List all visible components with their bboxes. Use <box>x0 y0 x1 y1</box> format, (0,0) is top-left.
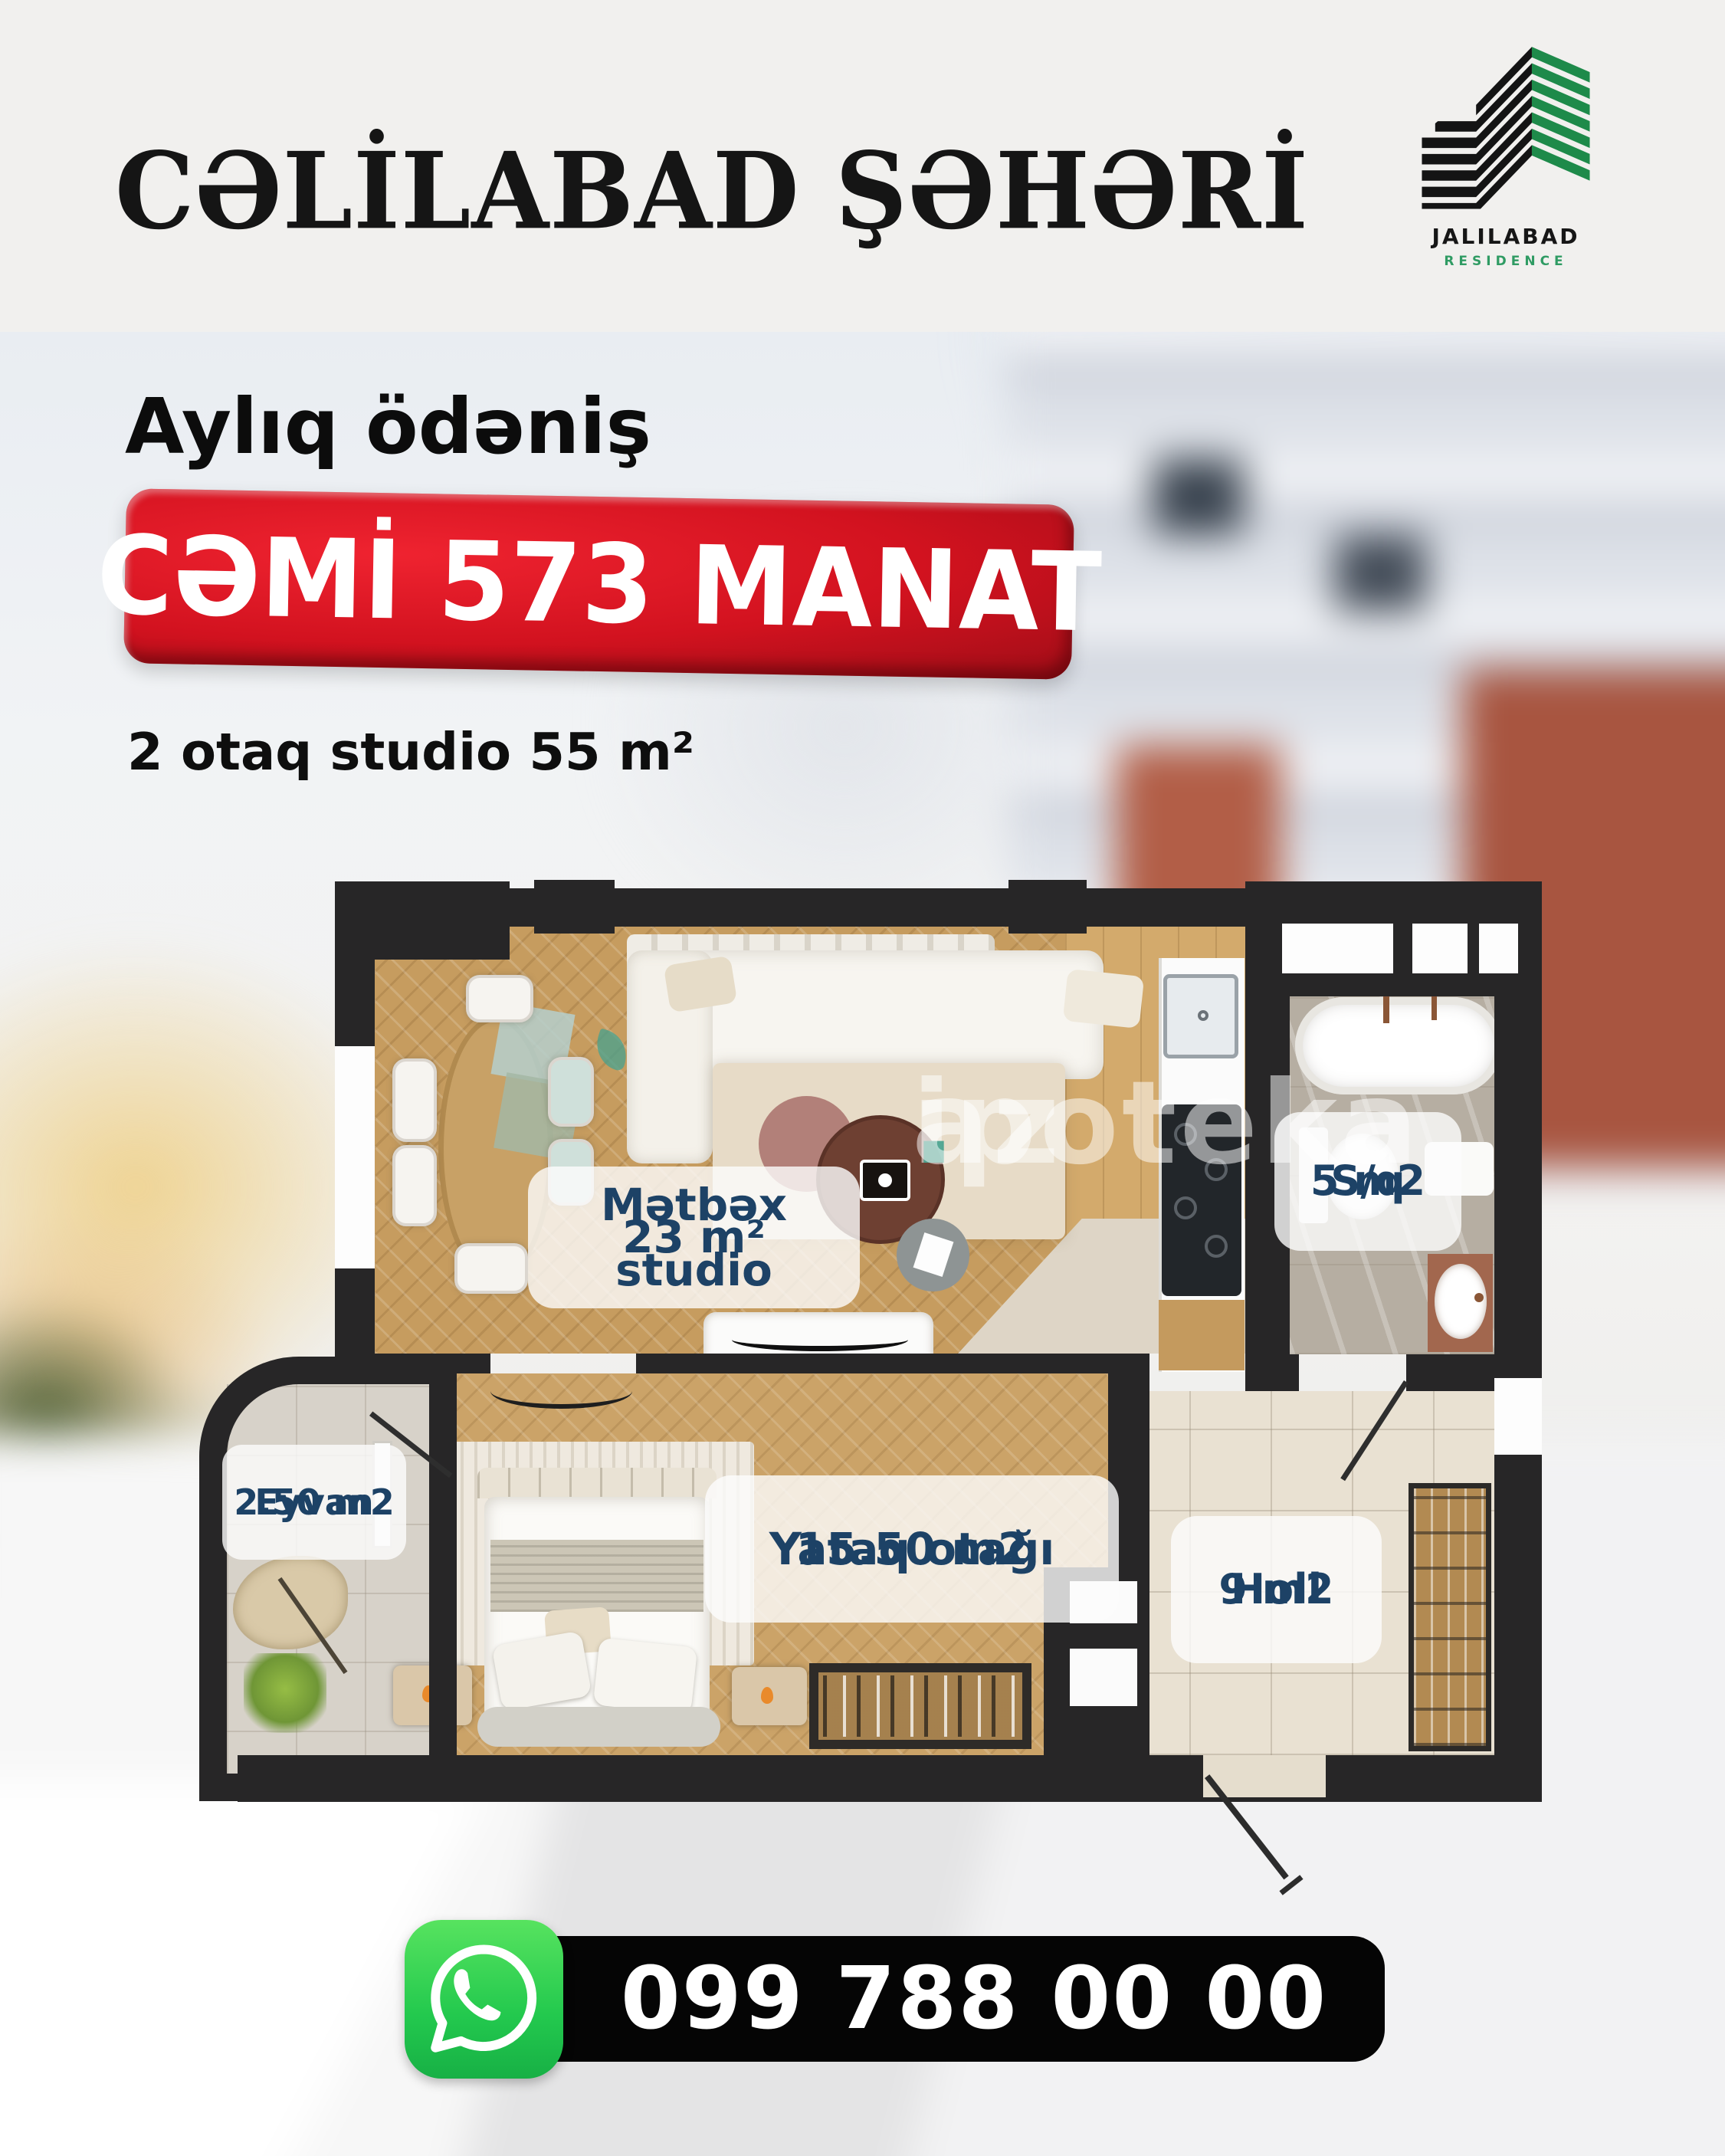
dining-chair <box>454 1243 528 1294</box>
building-window <box>1153 458 1245 535</box>
room-area: 2.50 m2 <box>234 1477 394 1528</box>
wall <box>636 1354 1108 1373</box>
room-area: 15.50 m2 <box>795 1517 1028 1581</box>
wall <box>335 955 375 1051</box>
offer-subtitle: 2 otaq studio 55 m² <box>127 722 694 782</box>
wall <box>1245 1354 1299 1391</box>
room-label-balcony: Eyvan 2.50 m2 <box>222 1445 406 1560</box>
page-title: CƏLİLABAD ŞƏHƏRİ <box>115 129 1341 253</box>
phone-button[interactable]: 099 788 00 00 <box>494 1936 1385 2062</box>
whatsapp-icon[interactable] <box>405 1920 563 2079</box>
brand-name: JALILABAD <box>1379 224 1632 249</box>
brand-building-icon <box>1405 38 1606 213</box>
window <box>1412 924 1468 973</box>
bed-headboard <box>477 1468 717 1498</box>
dining-chair <box>392 1145 437 1226</box>
bed-throw <box>490 1540 703 1612</box>
wall <box>510 888 1253 927</box>
dining-chair <box>466 975 533 1022</box>
building-window <box>1335 535 1426 612</box>
price-badge: CƏMİ 573 MANAT <box>123 488 1074 680</box>
nightstand <box>732 1667 807 1725</box>
window <box>335 1046 375 1268</box>
room-label-bedroom: Yataq otağı 15.50 m2 <box>705 1475 1119 1623</box>
dining-chair <box>392 1058 437 1142</box>
kitchen-sink <box>1163 974 1238 1058</box>
tv-screen <box>732 1328 908 1351</box>
closet-door <box>1070 1649 1137 1706</box>
window <box>1494 1378 1542 1455</box>
room-area: 23 m² <box>622 1205 766 1269</box>
wall-pier <box>1008 880 1087 934</box>
wall <box>437 1529 457 1755</box>
room-label-kitchen: Mətbəx studio 23 m² <box>528 1167 860 1308</box>
window <box>1479 924 1518 973</box>
hall-shoe-rack <box>1409 1483 1491 1751</box>
sofa-pillow <box>1063 969 1145 1029</box>
lead-text: Aylıq ödəniş <box>125 382 651 471</box>
window <box>1282 924 1393 973</box>
dining-chair <box>548 1057 594 1127</box>
bed-pillow <box>593 1638 697 1715</box>
kitchen-cabinet <box>1159 1300 1245 1370</box>
watermark-tld: az <box>912 1057 1063 1190</box>
floor-plan: Mətbəx studio 23 m² S/q 5 m2 Eyvan 2.50 … <box>238 875 1542 1802</box>
wall-pier <box>534 880 615 934</box>
price-badge-text: CƏMİ 573 MANAT <box>96 512 1103 656</box>
brand-subtitle: RESIDENCE <box>1379 254 1632 269</box>
wall <box>437 1369 457 1415</box>
tray <box>860 1160 910 1201</box>
bath-sink <box>1435 1264 1487 1339</box>
brand-logo: JALILABAD RESIDENCE <box>1379 38 1632 269</box>
wall <box>1406 1354 1494 1391</box>
bedroom-door-arc <box>490 1373 632 1409</box>
wall <box>335 881 510 960</box>
balcony-wall <box>199 1357 457 1801</box>
bedroom-wardrobe <box>809 1663 1031 1749</box>
room-area: 9 m2 <box>1218 1560 1333 1619</box>
phone-number: 099 788 00 00 <box>621 1949 1327 2049</box>
bed-bench <box>477 1707 720 1747</box>
room-label-hall: Holl 9 m2 <box>1171 1516 1382 1663</box>
